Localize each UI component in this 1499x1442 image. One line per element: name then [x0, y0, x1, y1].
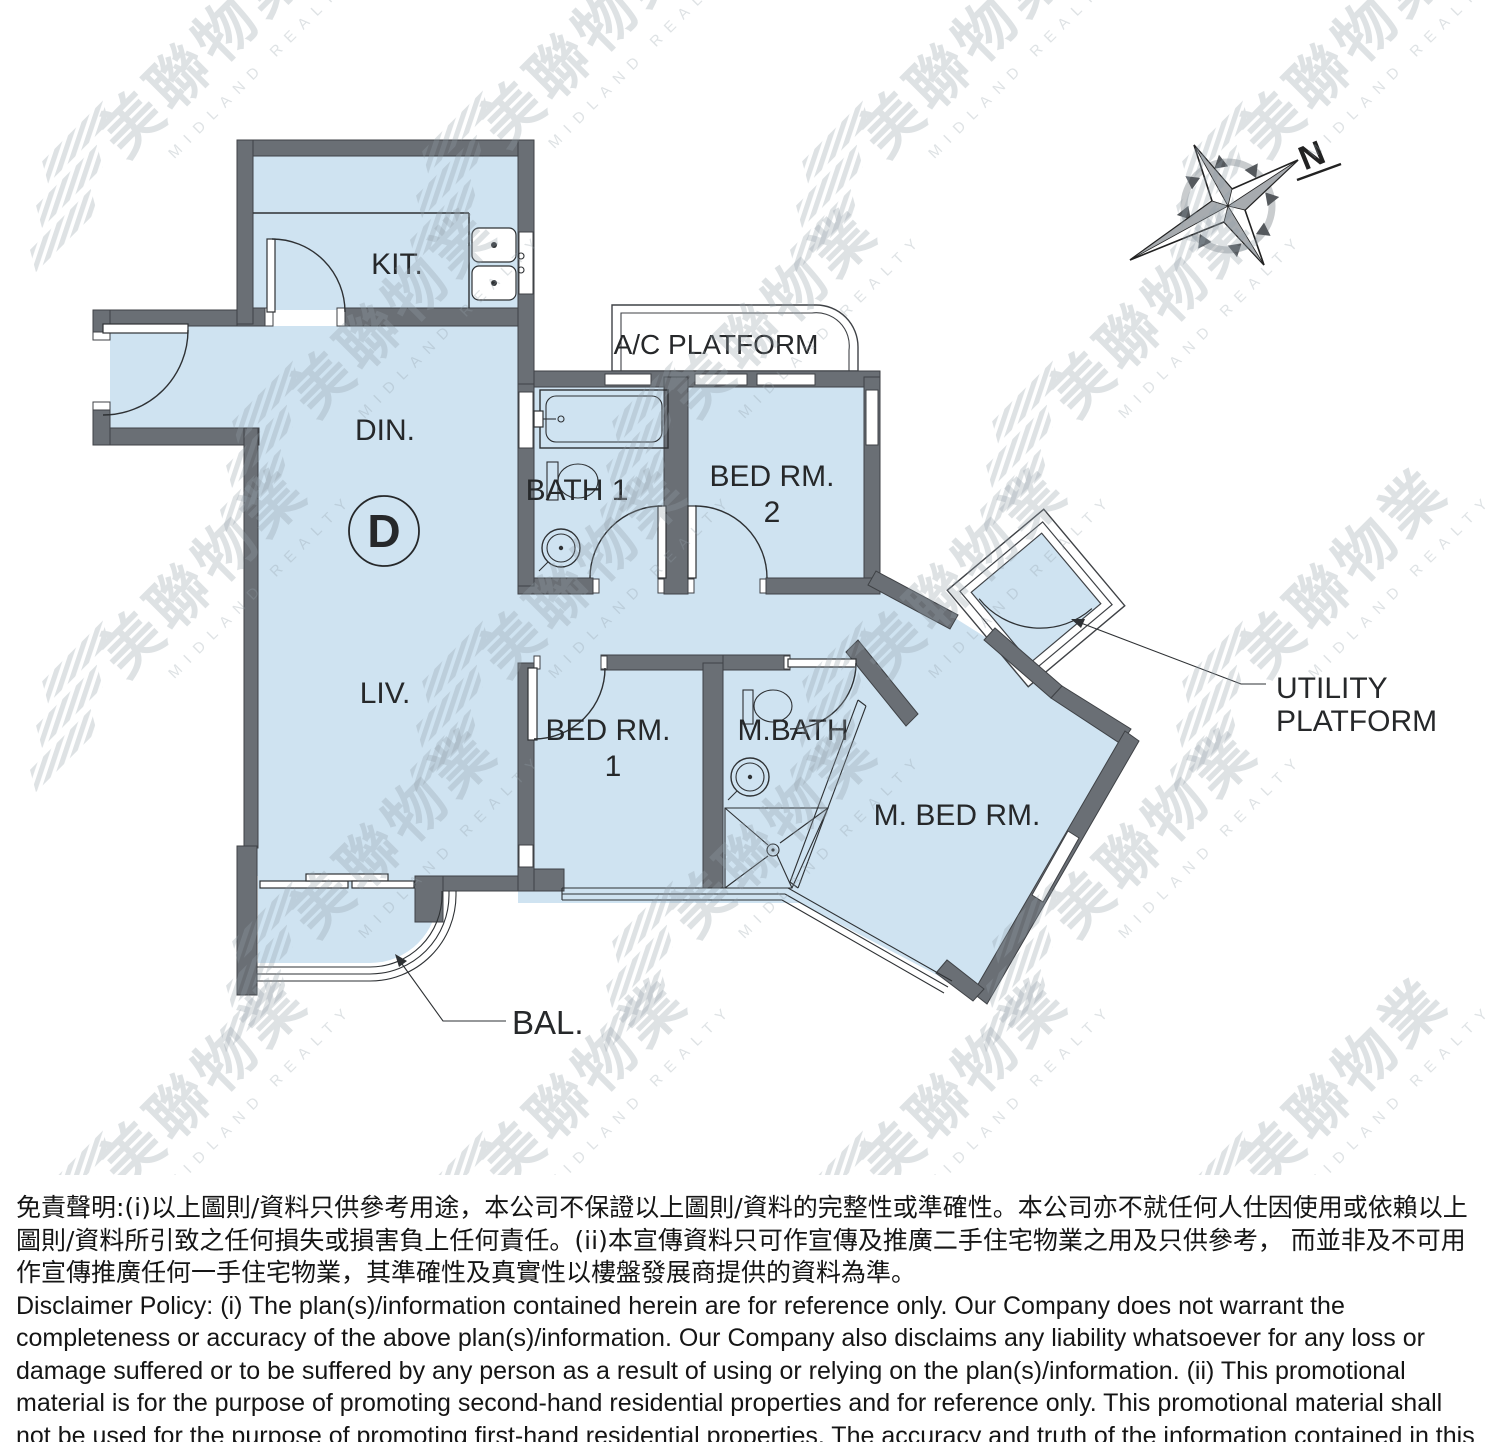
- watermark: 美聯物業 MIDLAND REALTY: [744, 944, 1118, 1175]
- room-label-bedroom1: BED RM.: [545, 714, 670, 747]
- watermark: 美聯物業 MIDLAND REALTY: [364, 0, 738, 278]
- bathtub-tap: [534, 411, 543, 427]
- room-label-bedroom2-number: 2: [764, 496, 781, 529]
- room-label-bedroom1-number: 1: [605, 750, 622, 783]
- bedroom1-door-leaf: [528, 668, 537, 740]
- disclaimer-chinese: 免責聲明:(i)以上圖則/資料只供參考用途，本公司不保證以上圖則/資料的完整性或…: [16, 1192, 1483, 1290]
- unit-marker-label: D: [367, 505, 400, 557]
- svg-text:美聯物業: 美聯物業: [1037, 194, 1273, 430]
- watermark: 美聯物業 MIDLAND REALTY: [364, 944, 738, 1175]
- svg-text:美聯物業: 美聯物業: [847, 0, 1083, 171]
- room-label-bedroom2: BED RM.: [709, 460, 834, 493]
- label-utility-line1: UTILITY: [1276, 672, 1388, 705]
- balcony-leader-arrow: [395, 954, 407, 967]
- disclaimer-block: 免責聲明:(i)以上圖則/資料只供參考用途，本公司不保證以上圖則/資料的完整性或…: [0, 1192, 1499, 1442]
- kitchen-door-leaf: [267, 239, 275, 312]
- svg-text:美聯物業: 美聯物業: [1227, 0, 1463, 171]
- svg-text:美聯物業: 美聯物業: [1227, 454, 1463, 690]
- entry-floor: [110, 326, 253, 428]
- floorplan-drawing: A/C PLATFORM: [0, 0, 1499, 1175]
- entry-door-leaf: [103, 324, 188, 333]
- room-label-masterbedroom: M. BED RM.: [874, 799, 1041, 832]
- watermark: 美聯物業 MIDLAND REALTY: [1124, 434, 1498, 808]
- label-balcony: BAL.: [512, 1004, 584, 1041]
- balcony-leader-line: [397, 957, 506, 1021]
- living-window: [519, 845, 533, 867]
- watermark: 美聯物業 MIDLAND REALTY: [1124, 944, 1498, 1175]
- bath1-window: [519, 392, 533, 448]
- ac-wall-window-1: [605, 374, 651, 385]
- bedroom2-window: [866, 390, 878, 445]
- label-utility-line2: PLATFORM: [1276, 705, 1437, 738]
- disclaimer-english: Disclaimer Policy: (i) The plan(s)/infor…: [16, 1290, 1483, 1442]
- watermark: 美聯物業 MIDLAND REALTY: [0, 944, 357, 1175]
- room-label-living: LIV.: [360, 677, 411, 710]
- floorplan-page: A/C PLATFORM: [0, 0, 1499, 1442]
- watermark: 美聯物業 MIDLAND REALTY: [934, 174, 1308, 548]
